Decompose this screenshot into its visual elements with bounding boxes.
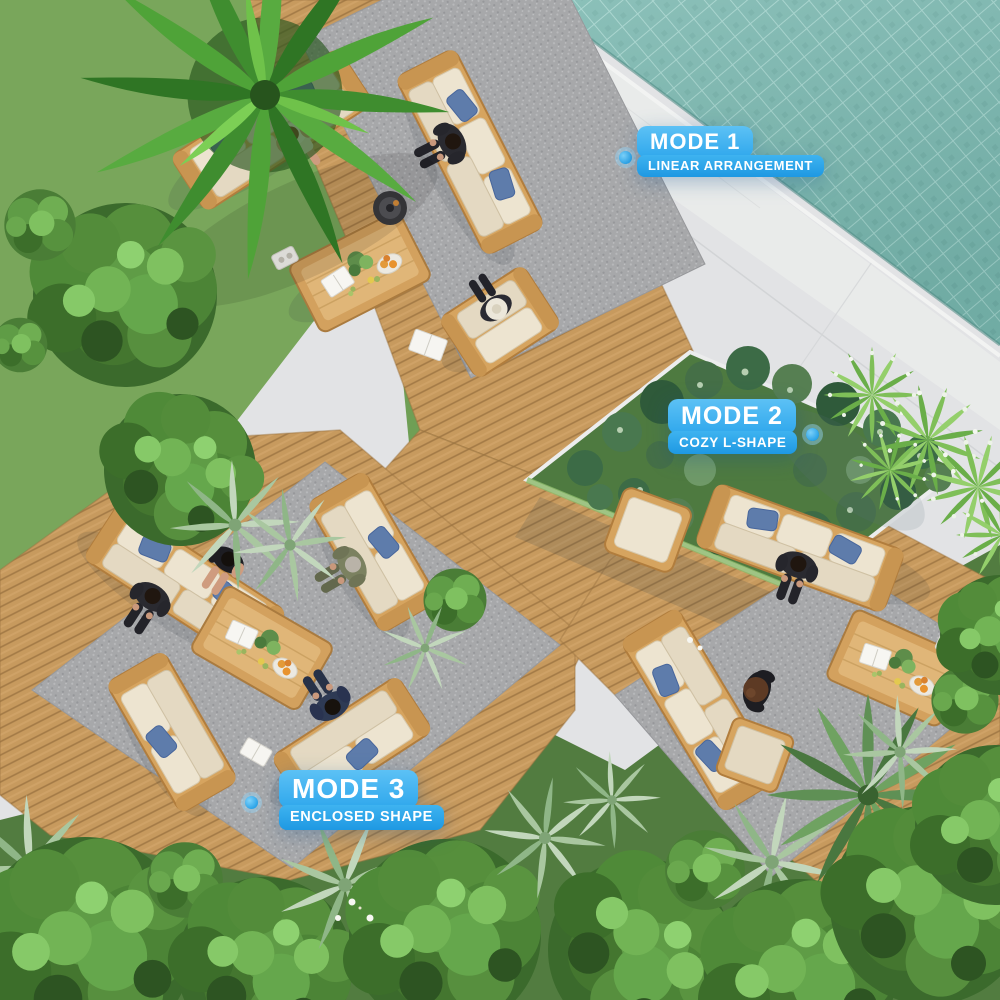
mode-2-label: MODE 2 COZY L-SHAPE — [668, 399, 797, 454]
mode-1-marker-dot — [619, 151, 632, 164]
mode-2-title-badge: MODE 2 — [668, 399, 796, 434]
bush — [4, 189, 75, 260]
mode-1-title-badge: MODE 1 — [637, 126, 753, 158]
patio-scene-image: MODE 1 LINEAR ARRANGEMENT MODE 2 COZY L-… — [0, 0, 1000, 1000]
mode-3-label: MODE 3 ENCLOSED SHAPE — [279, 770, 444, 830]
mode-1-subtitle-badge: LINEAR ARRANGEMENT — [637, 155, 824, 178]
mode-3-title-badge: MODE 3 — [279, 770, 418, 808]
mode-3-subtitle-badge: ENCLOSED SHAPE — [279, 805, 444, 829]
mode-1-label: MODE 1 LINEAR ARRANGEMENT — [637, 126, 824, 177]
patio-scene-canvas — [0, 0, 1000, 1000]
mode-2-marker-dot — [806, 428, 819, 441]
mode-3-marker-dot — [245, 796, 258, 809]
mode-2-subtitle-badge: COZY L-SHAPE — [668, 431, 797, 454]
